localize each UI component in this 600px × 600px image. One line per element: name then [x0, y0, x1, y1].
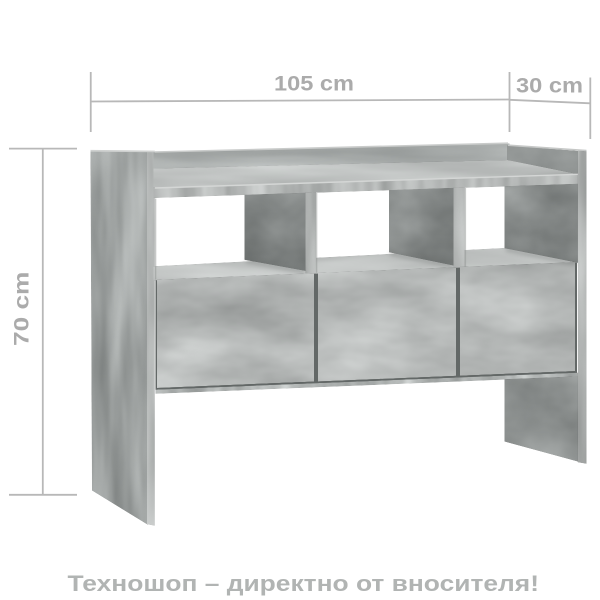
svg-text:70 cm: 70 cm	[11, 272, 34, 346]
svg-text:30 cm: 30 cm	[516, 75, 583, 98]
svg-text:105 cm: 105 cm	[274, 73, 354, 96]
svg-text:Техношоп – директно от вносите: Техношоп – директно от вносителя!	[68, 571, 540, 596]
